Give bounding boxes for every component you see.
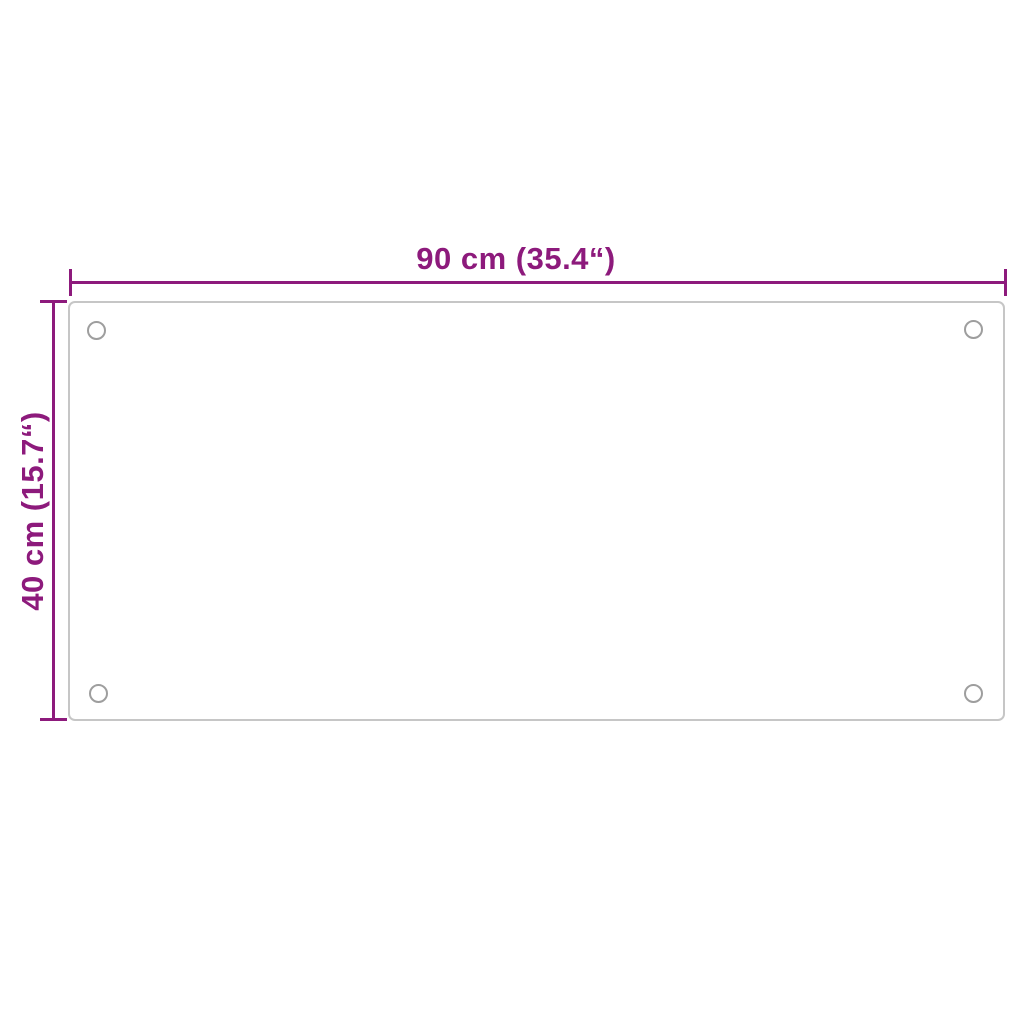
mounting-hole-bottom-right bbox=[964, 684, 983, 703]
height-dimension-line bbox=[52, 301, 55, 720]
height-dimension-tick-top bbox=[40, 300, 67, 303]
product-dimension-diagram: 90 cm (35.4“) 40 cm (15.7“) bbox=[0, 0, 1024, 1024]
mounting-hole-top-right bbox=[964, 320, 983, 339]
mounting-hole-top-left bbox=[87, 321, 106, 340]
width-dimension-line bbox=[70, 281, 1007, 284]
mounting-hole-bottom-left bbox=[89, 684, 108, 703]
width-dimension-label: 90 cm (35.4“) bbox=[416, 241, 616, 277]
width-dimension-tick-right bbox=[1004, 269, 1007, 296]
height-dimension-label: 40 cm (15.7“) bbox=[15, 411, 51, 611]
panel-outline bbox=[68, 301, 1005, 721]
width-dimension-tick-left bbox=[69, 269, 72, 296]
height-dimension-tick-bottom bbox=[40, 718, 67, 721]
